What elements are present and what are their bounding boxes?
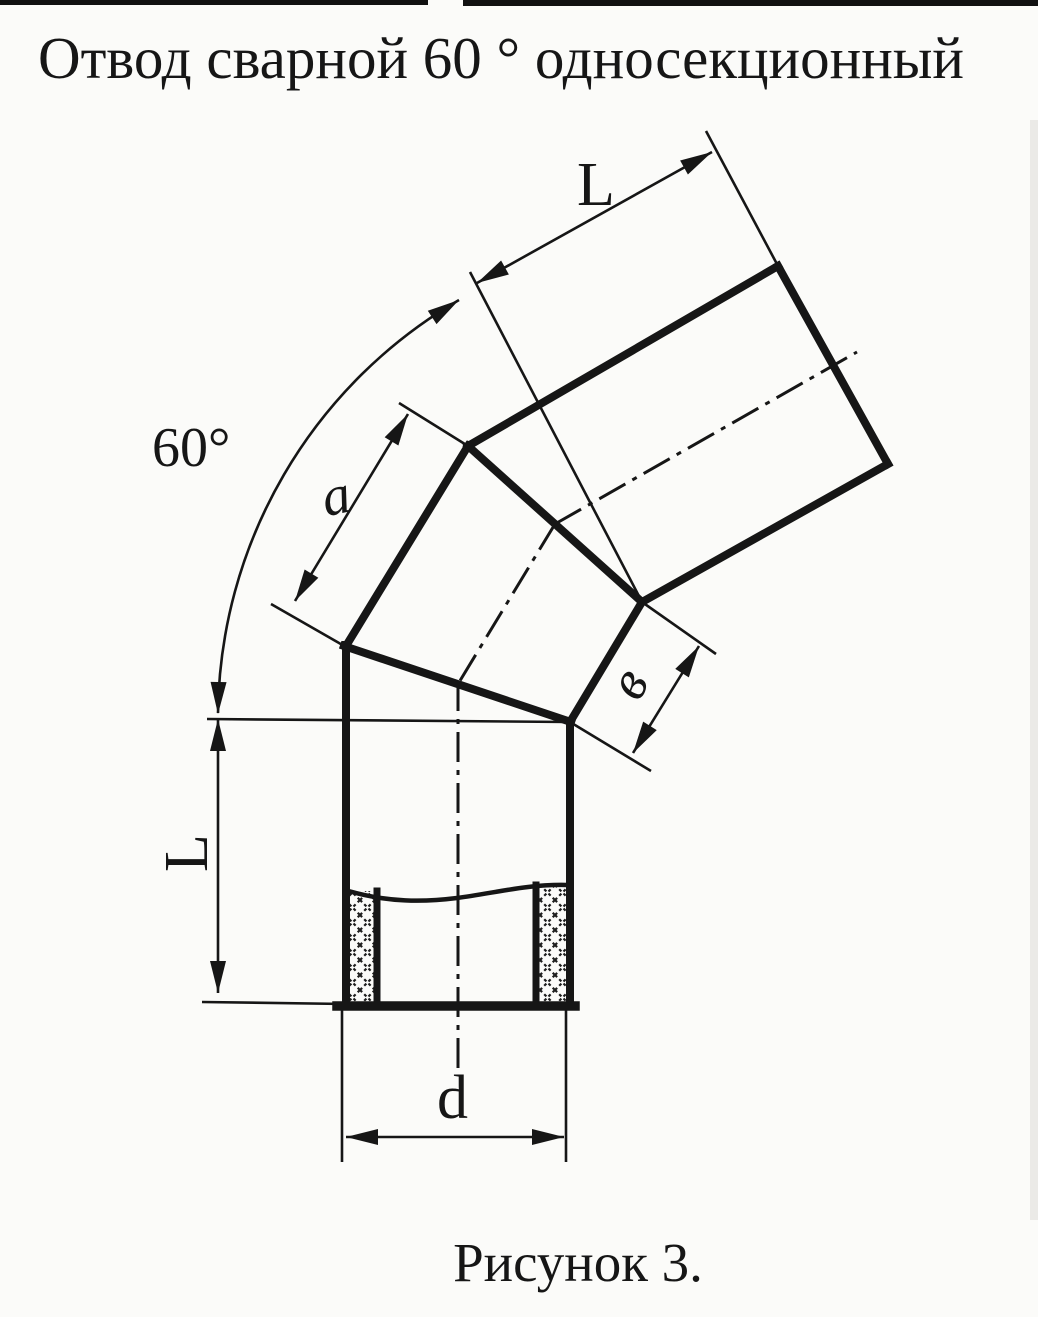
label-diameter-d: d bbox=[437, 1064, 468, 1132]
label-width-b: в bbox=[595, 658, 661, 709]
extension-line-L-top-left bbox=[470, 272, 642, 602]
technical-drawing: Отвод сварной 60 ° односекционный L 60° … bbox=[0, 0, 1038, 1317]
hatch-left-wall bbox=[346, 891, 377, 1004]
centerline-middle-section bbox=[458, 524, 555, 684]
arrowhead-d-left bbox=[346, 1129, 378, 1145]
label-section-a: a bbox=[316, 463, 356, 529]
arrowhead-b-lower bbox=[626, 722, 657, 758]
label-length-left: L bbox=[153, 834, 221, 872]
figure-title: Отвод сварной 60 ° односекционный bbox=[38, 25, 964, 91]
weld-seam-upper bbox=[468, 446, 642, 602]
scanned-figure-page: Отвод сварной 60 ° односекционный L 60° … bbox=[0, 0, 1038, 1317]
arrowhead-L-left-top bbox=[210, 719, 226, 751]
arrowhead-a-upper bbox=[385, 410, 415, 446]
extension-line-pipe-bottom bbox=[202, 1002, 346, 1004]
arrowheads bbox=[210, 145, 716, 1145]
hatch-right-wall bbox=[537, 885, 567, 1004]
scan-artifact-top bbox=[0, 0, 1038, 6]
extension-line-L-top-right bbox=[706, 131, 778, 266]
arrowhead-a-lower bbox=[288, 569, 318, 605]
arrowhead-L-top-right bbox=[680, 145, 716, 175]
arrowhead-d-right bbox=[532, 1129, 564, 1145]
upper-pipe-end-edge bbox=[778, 266, 888, 464]
figure-caption: Рисунок 3. bbox=[453, 1232, 703, 1293]
label-angle-60: 60° bbox=[152, 417, 230, 479]
label-length-top: L bbox=[577, 151, 615, 219]
extension-line-a-lower bbox=[271, 604, 346, 647]
extension-line-a-upper bbox=[399, 403, 468, 446]
upper-pipe-bottom-edge bbox=[642, 464, 888, 602]
arrowhead-b-upper bbox=[675, 642, 706, 678]
centerline-upper-pipe bbox=[555, 352, 857, 524]
elbow-outline bbox=[337, 266, 888, 1006]
extension-line-weld1-horizontal bbox=[207, 719, 568, 722]
arrowhead-arc-top bbox=[428, 293, 464, 324]
scan-artifact-right bbox=[1030, 120, 1038, 1220]
extension-line-b-upper bbox=[642, 602, 716, 654]
arrowhead-arc-bottom bbox=[210, 682, 227, 714]
arrowhead-L-left-bottom bbox=[210, 961, 226, 993]
middle-section-left-edge bbox=[346, 446, 468, 646]
